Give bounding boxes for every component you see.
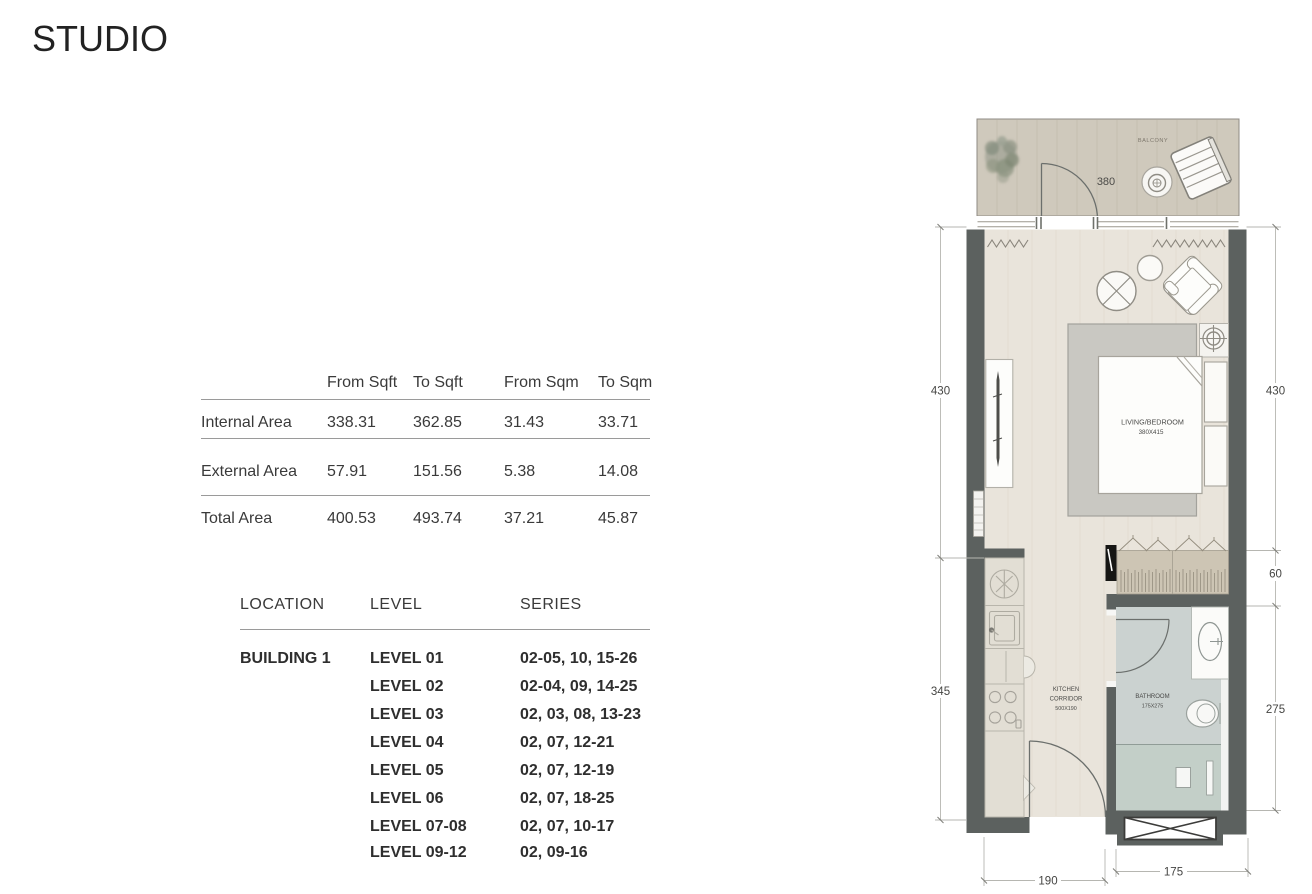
svg-text:275: 275: [1266, 704, 1285, 716]
svg-text:430: 430: [1266, 386, 1285, 398]
svg-text:380X415: 380X415: [1139, 429, 1164, 436]
svg-text:KITCHEN: KITCHEN: [1053, 687, 1079, 693]
svg-text:345: 345: [931, 686, 950, 698]
svg-text:BATHROOM: BATHROOM: [1135, 694, 1169, 700]
svg-text:500X190: 500X190: [1055, 706, 1077, 712]
svg-text:190: 190: [1038, 876, 1057, 888]
svg-text:175X275: 175X275: [1142, 704, 1164, 710]
svg-text:BALCONY: BALCONY: [1138, 138, 1168, 144]
svg-text:LIVING/BEDROOM: LIVING/BEDROOM: [1121, 418, 1184, 427]
svg-text:CORRIDOR: CORRIDOR: [1050, 697, 1083, 703]
svg-text:60: 60: [1269, 569, 1282, 581]
svg-text:175: 175: [1164, 867, 1183, 879]
svg-text:430: 430: [931, 386, 950, 398]
svg-text:380: 380: [1097, 176, 1115, 188]
